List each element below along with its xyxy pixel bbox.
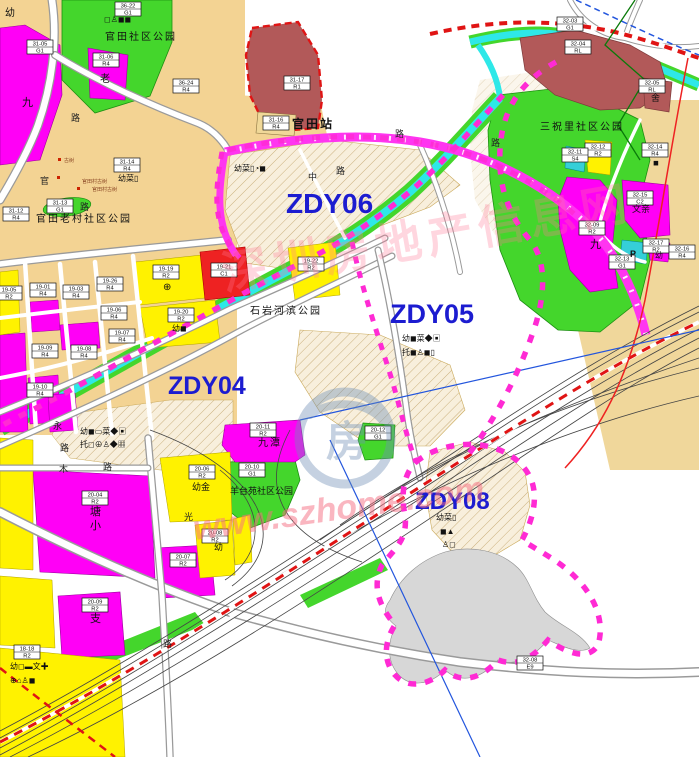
svg-text:36-24: 36-24 <box>179 81 195 87</box>
parcel-label-31-14: 31-14R4 <box>114 158 140 173</box>
road-char-3: 中 <box>308 171 317 182</box>
svg-text:36-22: 36-22 <box>121 4 136 10</box>
svg-text:G1: G1 <box>36 49 44 55</box>
parcel-label-32-08: 32-08E9 <box>517 656 543 671</box>
svg-text:19-05: 19-05 <box>2 288 17 294</box>
svg-text:19-07: 19-07 <box>115 331 130 337</box>
road-char-12: 路 <box>163 638 172 649</box>
svg-text:19-09: 19-09 <box>38 346 53 352</box>
place-label-4: 石岩河滨公园 <box>250 304 322 317</box>
road-char-11: 路 <box>60 442 69 453</box>
svg-text:RL: RL <box>574 49 582 55</box>
parcel-label-36-24: 36-24R4 <box>173 79 199 94</box>
svg-text:19-08: 19-08 <box>77 347 92 353</box>
map-canvas: 36-22G131-05G131-06R431-17R136-24R431-16… <box>0 0 699 757</box>
icon-row-13: 幼◻▬文✚ <box>10 661 49 671</box>
svg-text:R2: R2 <box>23 654 30 660</box>
svg-text:R2: R2 <box>91 500 98 506</box>
svg-text:19-06: 19-06 <box>107 308 122 314</box>
icon-row-0: ◻♙◼◼ <box>104 15 131 24</box>
parcel-label-32-05: 32-05RL <box>639 79 665 94</box>
parcel-label-19-05: 19-05R2 <box>0 286 22 301</box>
place-label-3: 三祝里社区公园 <box>540 120 624 133</box>
svg-text:E9: E9 <box>526 665 533 671</box>
svg-text:R2: R2 <box>259 432 266 438</box>
parcel-label-20-11: 20-11R2 <box>250 423 276 438</box>
svg-text:31-05: 31-05 <box>33 42 48 48</box>
svg-text:32-04: 32-04 <box>571 42 587 48</box>
parcel-label-19-01: 19-01R4 <box>30 283 56 298</box>
place-label-21: 官田村古树 <box>82 178 107 185</box>
svg-text:19-01: 19-01 <box>36 285 51 291</box>
svg-text:R4: R4 <box>39 292 47 298</box>
svg-text:31-14: 31-14 <box>120 160 136 166</box>
parcel-label-20-10: 20-10G1 <box>239 463 265 478</box>
svg-text:R4: R4 <box>118 338 126 344</box>
parcel-label-19-10: 19-10R4 <box>27 383 53 398</box>
icon-row-14: ⊕⌂♙◼ <box>10 676 35 685</box>
road-char-1: 路 <box>71 112 80 123</box>
svg-text:31-17: 31-17 <box>290 78 305 84</box>
svg-text:R4: R4 <box>102 62 110 68</box>
place-label-5: 羊台苑社区公园 <box>230 485 293 496</box>
svg-text:R4: R4 <box>36 392 44 398</box>
svg-text:20-04: 20-04 <box>88 493 104 499</box>
svg-text:31-06: 31-06 <box>99 55 114 61</box>
svg-text:20-11: 20-11 <box>256 425 270 431</box>
parcel-label-20-09: 20-09R2 <box>82 598 108 613</box>
road-char-7: 木 <box>59 463 68 474</box>
road-char-10: 永 <box>53 420 62 431</box>
parcel-label-31-16: 31-16R4 <box>263 116 289 131</box>
svg-text:32-12: 32-12 <box>591 145 606 151</box>
parcel-label-31-06: 31-06R4 <box>93 53 119 68</box>
road-char-5: 路 <box>395 128 404 139</box>
tree-marker-2 <box>77 187 80 190</box>
svg-text:32-03: 32-03 <box>563 19 578 25</box>
parcel-label-31-17: 31-17R1 <box>284 76 310 91</box>
place-label-19: P <box>630 249 636 259</box>
planning-map: 36-22G131-05G131-06R431-17R136-24R431-16… <box>0 0 699 757</box>
svg-text:20-12: 20-12 <box>371 428 386 434</box>
icon-row-6: 托◻⊕♙◆▦ <box>80 439 126 449</box>
icon-row-10: 幼◼ <box>172 323 187 333</box>
road-char-6: 路 <box>491 137 500 148</box>
parcel-label-32-14: 32-14R4 <box>642 143 668 158</box>
svg-text:R4: R4 <box>123 167 131 173</box>
place-label-20: 古树 <box>64 157 74 164</box>
place-label-10: 舍 <box>651 92 660 103</box>
svg-text:G1: G1 <box>248 472 256 478</box>
svg-text:S4: S4 <box>571 157 579 163</box>
parcel-label-19-06: 19-06R4 <box>101 306 127 321</box>
svg-text:G1: G1 <box>374 435 382 441</box>
svg-text:19-03: 19-03 <box>69 287 84 293</box>
place-label-13: 小 <box>90 519 103 532</box>
place-label-2: 官田老村社区公园 <box>36 212 132 225</box>
road-char-0: 官 <box>40 175 49 186</box>
svg-text:R2: R2 <box>5 295 12 301</box>
svg-text:R2: R2 <box>198 474 205 480</box>
parcel-label-32-16: 32-16R4 <box>669 245 695 260</box>
parcel-label-31-05: 31-05G1 <box>27 40 53 55</box>
svg-text:20-09: 20-09 <box>88 600 103 606</box>
parcel-label-19-26: 19-26R4 <box>97 277 123 292</box>
svg-text:19-19: 19-19 <box>159 267 174 273</box>
parcel-label-19-07: 19-07R4 <box>109 329 135 344</box>
tree-marker-0 <box>58 158 61 161</box>
parcel-label-31-12: 31-12R4 <box>3 207 29 222</box>
parcel-label-19-03: 19-03R4 <box>63 285 89 300</box>
parcel-label-20-04: 20-04R2 <box>82 491 108 506</box>
svg-text:32-11: 32-11 <box>568 150 582 156</box>
svg-text:31-12: 31-12 <box>9 209 24 215</box>
icon-row-12: ◼ <box>653 160 659 167</box>
road-char-8: 路 <box>103 461 112 472</box>
svg-text:G1: G1 <box>566 26 574 32</box>
svg-text:32-14: 32-14 <box>648 145 664 151</box>
place-label-6: 九潭 <box>258 437 282 449</box>
icon-row-1: 幼菜▯ <box>118 173 138 183</box>
place-label-18: 幼 <box>655 250 663 260</box>
svg-text:R4: R4 <box>72 294 80 300</box>
icon-row-11: ⊕ <box>163 282 171 293</box>
place-label-9: 老 <box>100 72 112 85</box>
zdy-label-ZDY04: ZDY04 <box>168 372 246 400</box>
zdy-label-ZDY06: ZDY06 <box>286 188 373 219</box>
svg-text:19-20: 19-20 <box>174 310 189 316</box>
icon-row-8: ◼▲ <box>440 527 455 536</box>
svg-text:R4: R4 <box>182 88 190 94</box>
place-label-7: 九 <box>590 238 603 251</box>
svg-text:R4: R4 <box>110 315 118 321</box>
svg-text:32-16: 32-16 <box>675 247 690 253</box>
place-label-16: 幼金 <box>192 481 210 492</box>
place-label-0: 官田社区公园 <box>105 30 177 43</box>
parcel-label-31-13: 31-13G1 <box>47 199 73 214</box>
place-label-1: 官田站 <box>292 116 334 131</box>
svg-text:32-08: 32-08 <box>523 658 538 664</box>
svg-text:R4: R4 <box>678 254 686 260</box>
svg-text:R2: R2 <box>594 152 601 158</box>
parcel-label-32-03: 32-03G1 <box>557 17 583 32</box>
parcel-label-18-18: 18-18R2 <box>14 645 40 660</box>
svg-text:32-15: 32-15 <box>633 193 648 199</box>
parcel-label-19-19: 19-19R2 <box>153 265 179 280</box>
svg-text:G1: G1 <box>618 264 626 270</box>
parcel-label-32-11: 32-11S4 <box>562 148 588 163</box>
svg-text:R4: R4 <box>12 216 20 222</box>
svg-text:18-18: 18-18 <box>20 647 35 653</box>
svg-text:32-05: 32-05 <box>645 81 660 87</box>
svg-text:20-07: 20-07 <box>176 555 191 561</box>
svg-text:R1: R1 <box>293 85 300 91</box>
icon-row-3: 幼◼菜◆▣ <box>402 333 441 343</box>
svg-text:R4: R4 <box>651 152 659 158</box>
parcel-label-19-20: 19-20R2 <box>168 308 194 323</box>
svg-text:32-17: 32-17 <box>649 241 664 247</box>
svg-text:31-16: 31-16 <box>269 118 284 124</box>
parcel-label-32-12: 32-12R2 <box>585 143 611 158</box>
road-char-2: 路 <box>80 201 89 212</box>
icon-row-9: ♙◻ <box>442 540 456 549</box>
place-label-22: 官田村古树 <box>92 186 117 193</box>
svg-text:19-10: 19-10 <box>33 385 48 391</box>
place-label-11: 文亲 <box>632 203 650 214</box>
icon-row-5: 幼◼▭菜◆▣ <box>80 426 126 436</box>
svg-text:房: 房 <box>326 418 368 465</box>
place-label-14: 支 <box>90 612 103 625</box>
parcel-label-32-04: 32-04RL <box>565 40 591 55</box>
tree-marker-1 <box>57 176 60 179</box>
svg-text:19-26: 19-26 <box>103 279 118 285</box>
svg-text:20-06: 20-06 <box>195 467 210 473</box>
svg-text:R2: R2 <box>179 562 186 568</box>
svg-text:R4: R4 <box>80 354 88 360</box>
place-label-15: 幼 <box>5 6 17 19</box>
svg-text:R2: R2 <box>177 317 184 323</box>
svg-text:R4: R4 <box>106 286 114 292</box>
svg-text:R2: R2 <box>162 274 169 280</box>
icon-row-4: 托◼♙◼▯ <box>402 347 435 357</box>
icon-row-2: 幼菜▯◔◼ <box>234 163 266 173</box>
parcel-label-19-08: 19-08R4 <box>71 345 97 360</box>
road-char-4: 路 <box>336 165 345 176</box>
svg-text:R4: R4 <box>272 125 280 131</box>
parcel-label-19-09: 19-09R4 <box>32 344 58 359</box>
place-label-8: 九 <box>22 96 35 109</box>
zdy-label-ZDY05: ZDY05 <box>390 299 474 329</box>
svg-text:31-13: 31-13 <box>53 201 68 207</box>
svg-text:G1: G1 <box>56 208 64 214</box>
svg-text:32-13: 32-13 <box>615 257 630 263</box>
parcel-label-20-07: 20-07R2 <box>170 553 196 568</box>
svg-text:20-10: 20-10 <box>245 465 260 471</box>
svg-text:R2: R2 <box>91 607 98 613</box>
place-label-12: 塘 <box>90 504 103 518</box>
svg-text:R4: R4 <box>41 353 49 359</box>
parcel-label-20-06: 20-06R2 <box>189 465 215 480</box>
